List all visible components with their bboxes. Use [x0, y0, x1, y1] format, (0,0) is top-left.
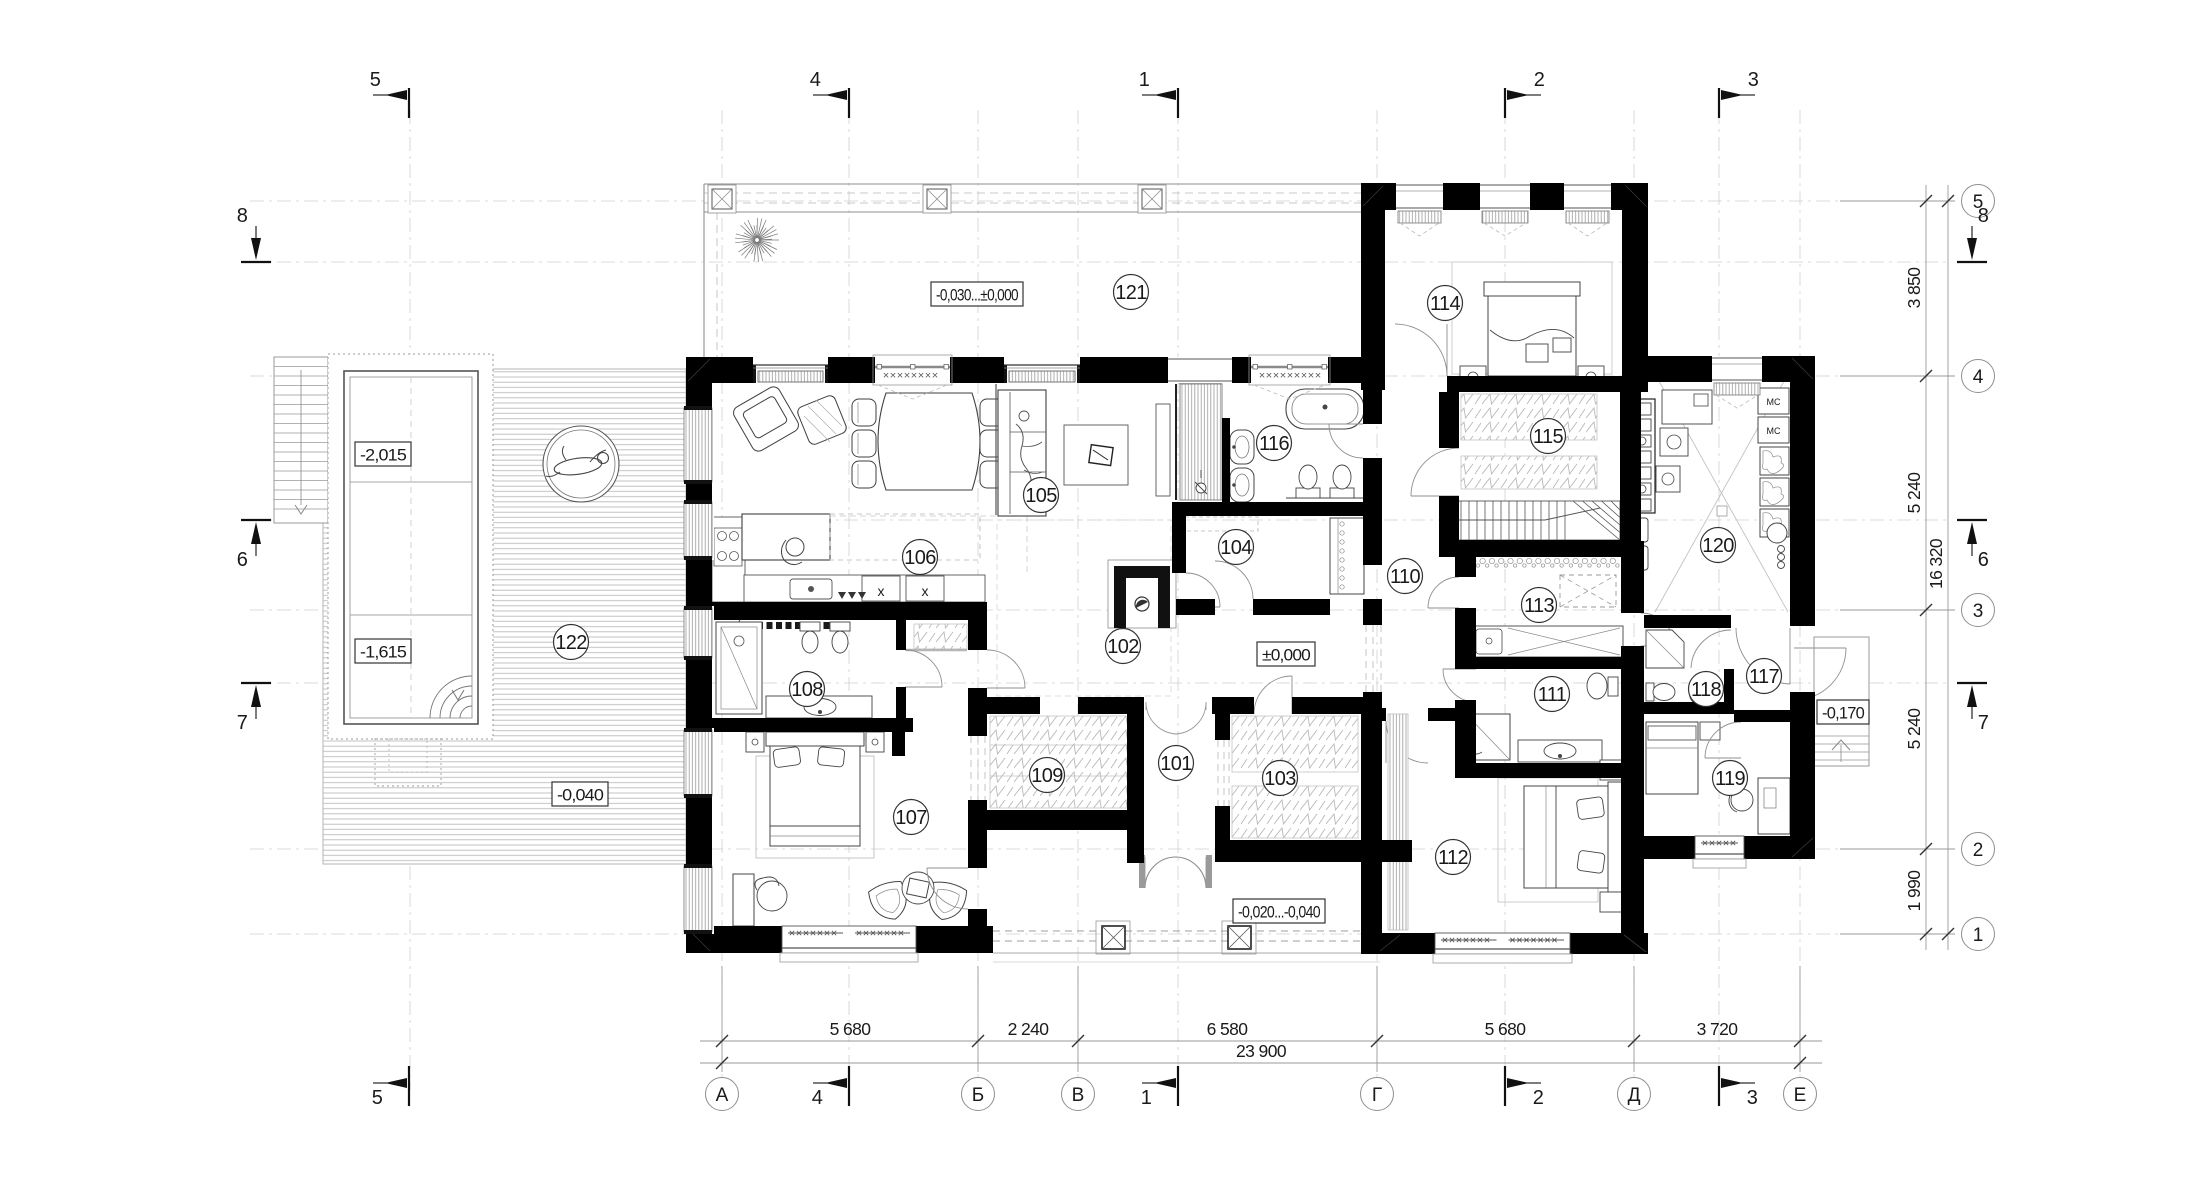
- svg-text:105: 105: [1025, 485, 1057, 507]
- svg-text:-0,040: -0,040: [557, 786, 603, 805]
- svg-text:5 240: 5 240: [1904, 472, 1924, 514]
- svg-text:108: 108: [791, 679, 823, 701]
- svg-text:3 850: 3 850: [1904, 267, 1924, 309]
- svg-text:А: А: [716, 1085, 729, 1106]
- svg-text:Г: Г: [1372, 1085, 1382, 1106]
- svg-text:4: 4: [810, 69, 821, 91]
- svg-text:2 240: 2 240: [1008, 1019, 1050, 1039]
- svg-text:2: 2: [1534, 69, 1545, 91]
- svg-text:МС: МС: [1767, 426, 1781, 436]
- svg-text:112: 112: [1438, 847, 1469, 869]
- svg-text:4: 4: [1973, 367, 1984, 388]
- svg-text:3: 3: [1747, 1087, 1758, 1109]
- svg-text:-2,015: -2,015: [360, 446, 406, 465]
- svg-text:113: 113: [1524, 595, 1555, 617]
- svg-text:16 320: 16 320: [1926, 538, 1946, 589]
- svg-text:2: 2: [1533, 1087, 1544, 1109]
- svg-text:104: 104: [1220, 537, 1252, 559]
- svg-text:3 720: 3 720: [1697, 1019, 1739, 1039]
- svg-text:110: 110: [1390, 566, 1421, 588]
- svg-text:101: 101: [1160, 753, 1192, 775]
- svg-text:120: 120: [1702, 535, 1734, 557]
- svg-text:3: 3: [1748, 69, 1759, 91]
- svg-text:7: 7: [237, 712, 248, 734]
- svg-text:6: 6: [237, 549, 248, 571]
- svg-text:-0,030...±0,000: -0,030...±0,000: [936, 286, 1018, 305]
- svg-text:x: x: [922, 583, 929, 599]
- svg-text:5 680: 5 680: [830, 1019, 872, 1039]
- svg-text:1: 1: [1973, 925, 1984, 946]
- svg-text:8: 8: [237, 205, 248, 227]
- svg-text:106: 106: [904, 547, 936, 569]
- svg-text:Б: Б: [972, 1085, 984, 1106]
- svg-text:1 990: 1 990: [1904, 870, 1924, 912]
- svg-text:6 580: 6 580: [1207, 1019, 1249, 1039]
- svg-text:МС: МС: [1767, 397, 1781, 407]
- svg-text:114: 114: [1430, 293, 1461, 315]
- svg-text:119: 119: [1715, 768, 1746, 790]
- svg-text:121: 121: [1115, 282, 1147, 304]
- svg-text:-0,020...-0,040: -0,020...-0,040: [1238, 903, 1320, 922]
- svg-text:4: 4: [812, 1087, 823, 1109]
- svg-text:-1,615: -1,615: [360, 643, 406, 662]
- svg-text:3: 3: [1973, 601, 1984, 622]
- svg-text:103: 103: [1264, 768, 1296, 790]
- svg-text:7: 7: [1978, 712, 1989, 734]
- svg-text:5: 5: [372, 1087, 383, 1109]
- svg-text:23 900: 23 900: [1236, 1041, 1287, 1061]
- svg-text:111: 111: [1538, 684, 1567, 706]
- svg-text:117: 117: [1749, 666, 1780, 688]
- svg-text:122: 122: [555, 632, 587, 654]
- svg-text:6: 6: [1978, 549, 1989, 571]
- svg-text:118: 118: [1691, 679, 1722, 701]
- svg-text:5: 5: [370, 69, 381, 91]
- svg-text:115: 115: [1533, 426, 1564, 448]
- svg-text:1: 1: [1141, 1087, 1152, 1109]
- svg-text:8: 8: [1978, 205, 1989, 227]
- svg-text:107: 107: [895, 807, 927, 829]
- svg-text:1: 1: [1139, 69, 1150, 91]
- svg-text:В: В: [1072, 1085, 1085, 1106]
- svg-text:Е: Е: [1794, 1085, 1807, 1106]
- svg-text:Д: Д: [1628, 1085, 1641, 1106]
- svg-text:±0,000: ±0,000: [1262, 646, 1310, 665]
- svg-text:116: 116: [1259, 433, 1290, 455]
- svg-text:5 240: 5 240: [1904, 708, 1924, 750]
- svg-text:109: 109: [1031, 765, 1063, 787]
- svg-text:x: x: [878, 583, 885, 599]
- svg-text:-0,170: -0,170: [1822, 704, 1864, 723]
- svg-text:5 680: 5 680: [1485, 1019, 1527, 1039]
- svg-text:2: 2: [1973, 840, 1984, 861]
- svg-text:102: 102: [1107, 636, 1139, 658]
